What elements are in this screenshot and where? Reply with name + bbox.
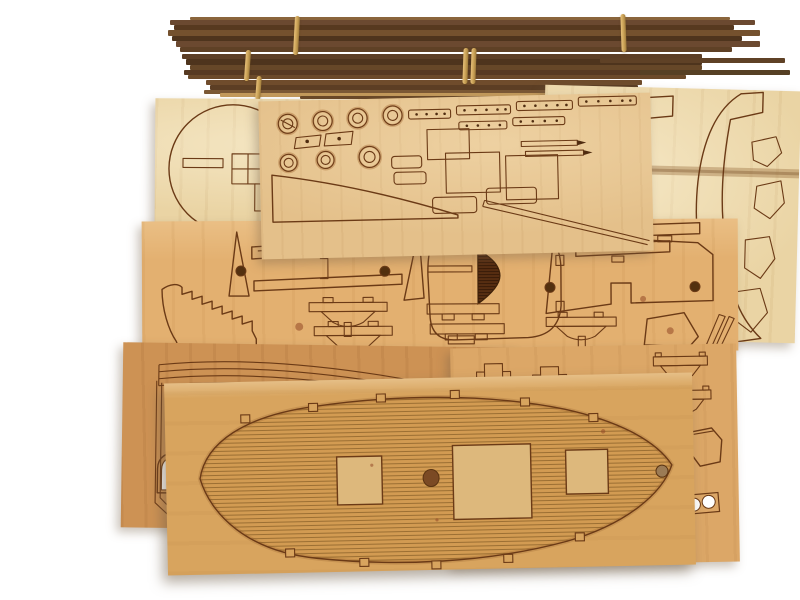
wood-knot bbox=[667, 327, 674, 334]
deck-hatch-opening bbox=[452, 444, 532, 520]
round-hole bbox=[380, 266, 390, 276]
small-fitting-part bbox=[394, 172, 426, 185]
sheet-upper-middle-engravings bbox=[258, 93, 653, 260]
slot-stub bbox=[320, 259, 328, 279]
chainplate-strip bbox=[456, 105, 510, 115]
wood-knot bbox=[295, 323, 303, 331]
round-hole bbox=[545, 282, 555, 292]
small-bracket-part bbox=[744, 236, 775, 279]
batten-strip bbox=[521, 140, 592, 157]
wood-knot bbox=[640, 296, 646, 302]
porthole-ring bbox=[382, 105, 402, 125]
deck-hatch-opening bbox=[566, 449, 609, 494]
notched-bar-part bbox=[427, 304, 499, 320]
grating-part bbox=[445, 152, 500, 193]
chainplate-strip bbox=[513, 117, 565, 126]
mast-step-bracket bbox=[309, 297, 387, 336]
hatched-window bbox=[478, 250, 500, 304]
mast-step-bracket bbox=[546, 312, 616, 348]
porthole-ring bbox=[278, 114, 298, 134]
grating-part bbox=[427, 129, 470, 160]
small-fitting-part bbox=[432, 197, 476, 214]
wood-strip bbox=[600, 58, 785, 63]
sheet-upper-middle bbox=[258, 93, 653, 260]
deck-sheet bbox=[164, 372, 696, 575]
wood-strip bbox=[640, 70, 790, 75]
transom-slot bbox=[428, 266, 472, 272]
deck-hatch-opening bbox=[337, 456, 383, 505]
porthole-ring bbox=[347, 108, 367, 128]
small-bracket-part bbox=[754, 180, 785, 219]
planked-stern-triangle bbox=[272, 171, 458, 222]
chainplate-strip bbox=[408, 109, 450, 119]
wood-strip bbox=[188, 75, 686, 79]
wood-strip bbox=[180, 47, 732, 52]
wale-wedge-part bbox=[483, 197, 650, 249]
small-bracket-part bbox=[751, 136, 782, 167]
kit-photo: Wooden model ship kit: three rubber-band… bbox=[0, 0, 800, 600]
grating-part bbox=[506, 155, 559, 200]
mast-hole bbox=[423, 469, 439, 486]
round-hole bbox=[690, 282, 700, 292]
porthole-ring bbox=[312, 111, 332, 131]
cleat-part bbox=[294, 131, 353, 148]
small-fitting-part bbox=[392, 156, 422, 169]
porthole-ring bbox=[279, 154, 297, 172]
slot-cut bbox=[183, 158, 223, 167]
chainplate-strip bbox=[578, 96, 636, 106]
porthole-ring bbox=[316, 151, 334, 169]
mast-hole bbox=[656, 465, 668, 477]
frame-wing-left bbox=[229, 232, 249, 296]
beam-tab bbox=[612, 256, 624, 262]
deck-sheet-engravings bbox=[164, 372, 696, 575]
hexagon-part bbox=[690, 428, 723, 467]
porthole-ring bbox=[358, 146, 380, 168]
small-fitting-part bbox=[486, 187, 536, 204]
round-hole bbox=[236, 266, 246, 276]
chainplate-strip bbox=[516, 100, 572, 110]
